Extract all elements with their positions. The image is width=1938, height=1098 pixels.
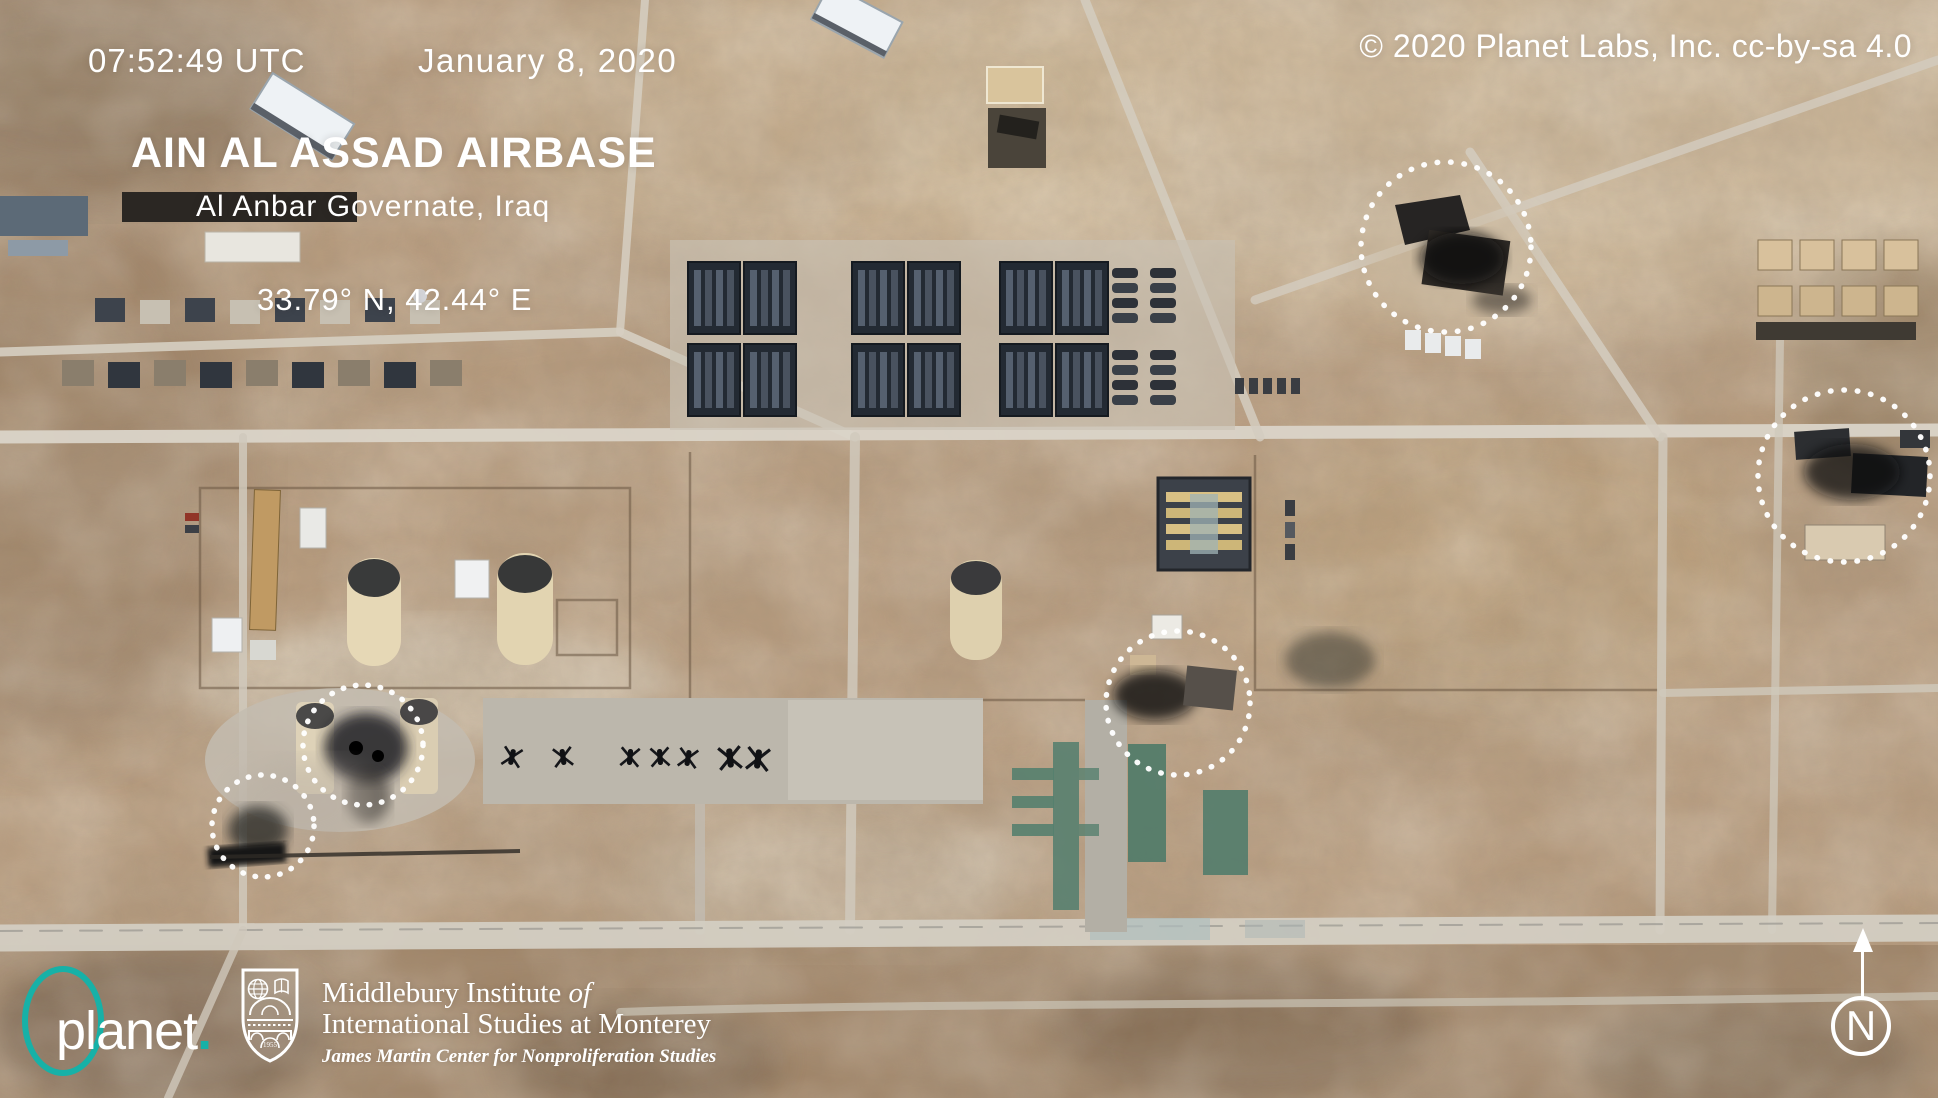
planet-logo-dot: .: [197, 1001, 211, 1061]
planet-wordmark: planet.: [56, 1000, 211, 1062]
airbase-title: AIN AL ASSAD AIRBASE: [131, 132, 657, 175]
center-name: James Martin Center for Nonproliferation…: [322, 1046, 716, 1068]
north-label: N: [1846, 1005, 1876, 1047]
date-label: January 8, 2020: [418, 44, 677, 77]
north-arrow-shaft: [1861, 951, 1864, 997]
north-circle: N: [1831, 996, 1891, 1056]
institute-line1: Middlebury Institute of: [322, 978, 716, 1009]
shield-year: 1955: [263, 1041, 278, 1049]
institute-name-block: Middlebury Institute of International St…: [322, 978, 716, 1068]
copyright-label: © 2020 Planet Labs, Inc. cc-by-sa 4.0: [1359, 30, 1912, 62]
annotated-satellite-view: 07:52:49 UTC January 8, 2020 © 2020 Plan…: [0, 0, 1938, 1098]
institute-line2: International Studies at Monterey: [322, 1009, 716, 1040]
timestamp-label: 07:52:49 UTC: [88, 44, 305, 77]
middlebury-shield-icon: 1955: [238, 966, 302, 1066]
airbase-subtitle: Al Anbar Governate, Iraq: [196, 192, 550, 222]
north-arrow-head: [1853, 928, 1873, 952]
coordinates-label: 33.79° N, 42.44° E: [257, 284, 532, 315]
